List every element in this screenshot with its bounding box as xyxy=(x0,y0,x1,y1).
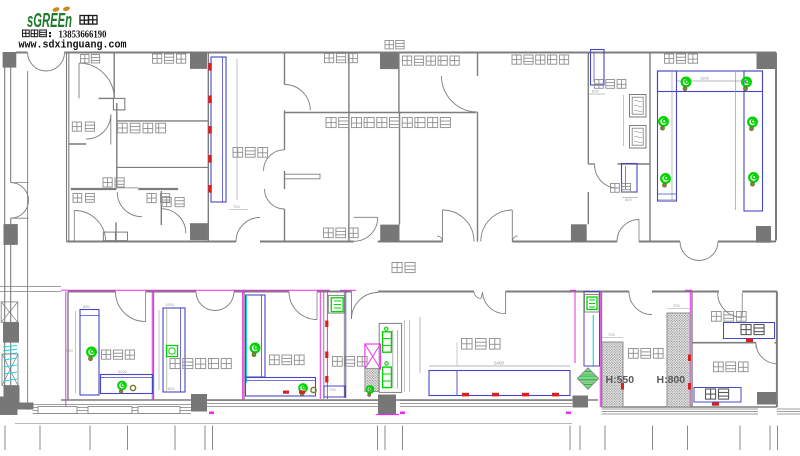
svg-text:H:550: H:550 xyxy=(606,374,635,386)
svg-text:5400: 5400 xyxy=(494,361,505,366)
svg-text:600: 600 xyxy=(83,304,90,309)
svg-text:700: 700 xyxy=(233,204,240,209)
svg-text:700: 700 xyxy=(329,387,336,392)
svg-text:600: 600 xyxy=(592,89,599,94)
svg-text:2800: 2800 xyxy=(700,76,710,81)
svg-text:700: 700 xyxy=(608,332,615,337)
svg-text:600: 600 xyxy=(66,348,73,353)
svg-text:800: 800 xyxy=(168,386,175,391)
svg-text:700: 700 xyxy=(673,303,680,308)
svg-text:600: 600 xyxy=(625,197,632,202)
svg-text:1200: 1200 xyxy=(165,302,175,307)
svg-text:2000: 2000 xyxy=(118,369,128,374)
svg-text:H:800: H:800 xyxy=(657,374,686,386)
svg-text:www.sdxinguang.com: www.sdxinguang.com xyxy=(19,40,127,52)
